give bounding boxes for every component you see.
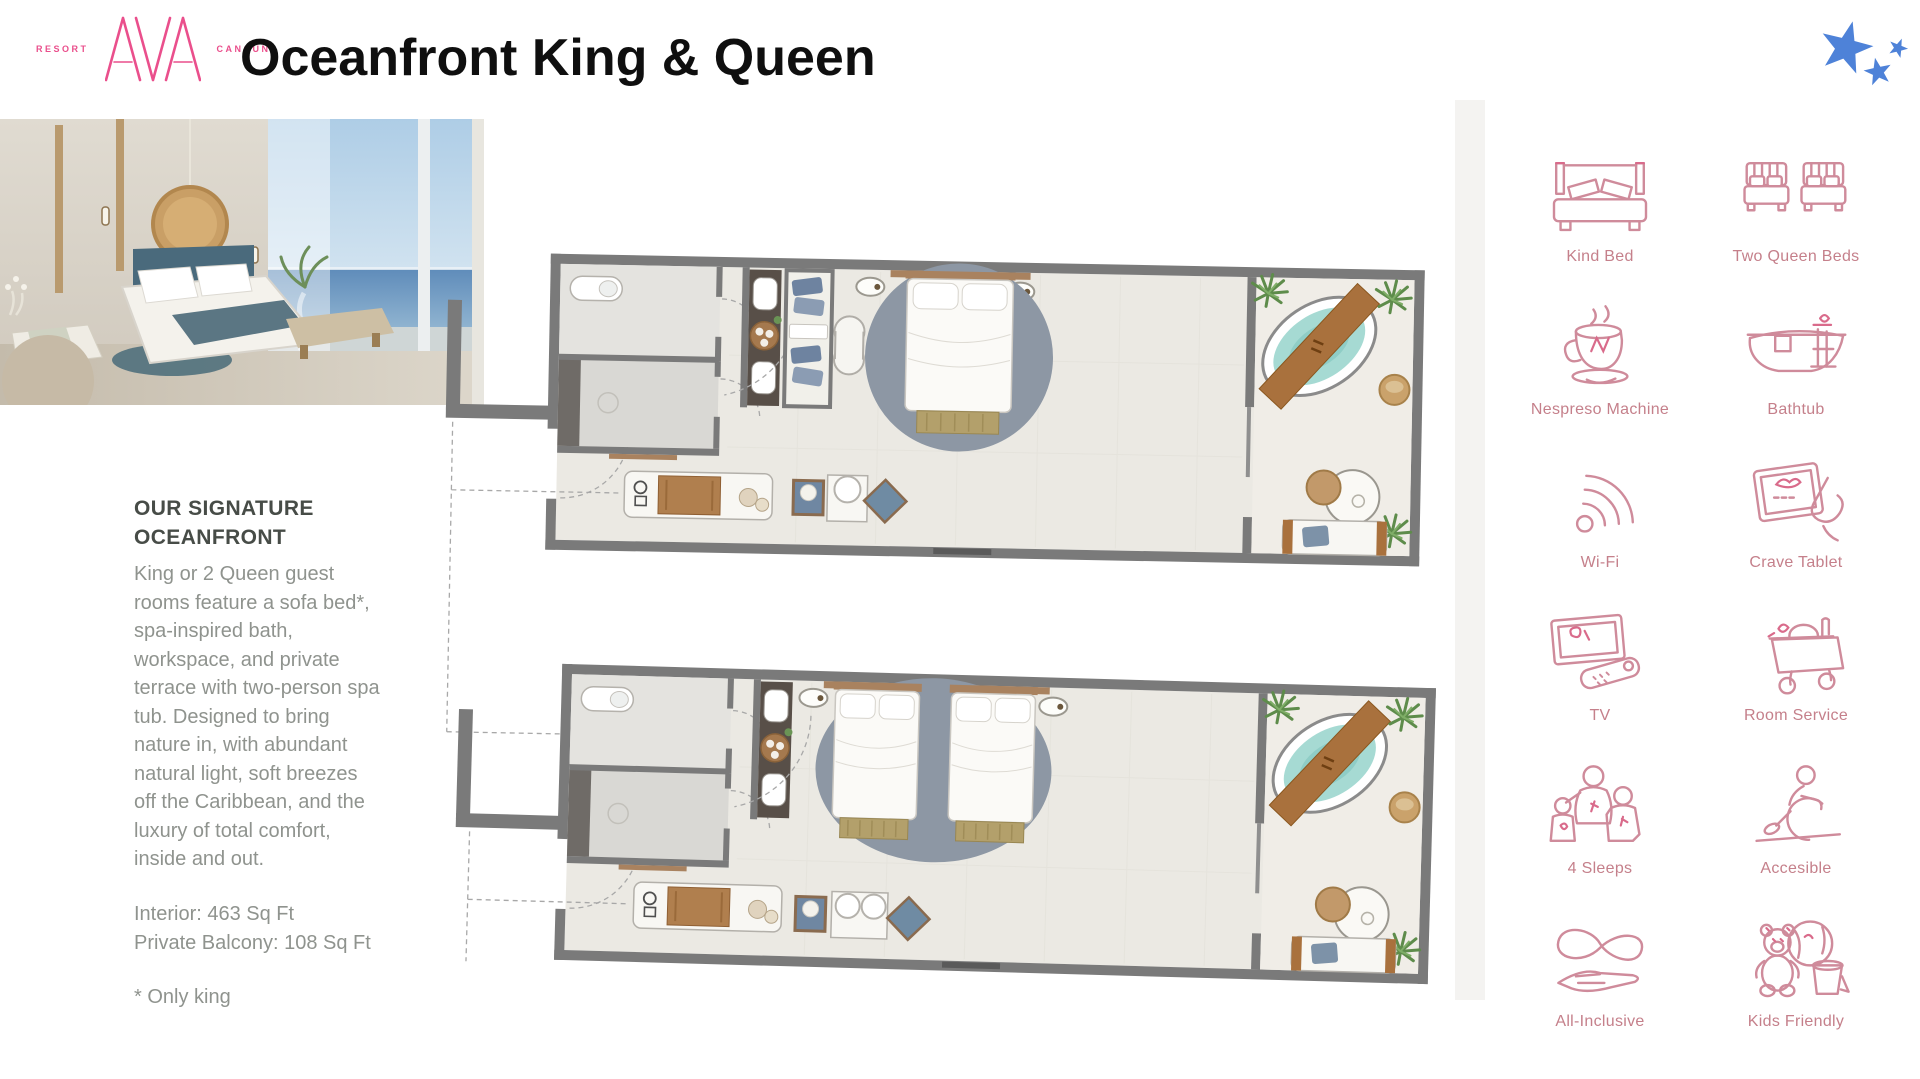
two-queen-room-plan [452, 661, 1436, 988]
room-description-block: OUR SIGNATURE OCEANFRONT King or 2 Queen… [134, 494, 434, 1009]
description-line: natural light, soft breezes [134, 760, 434, 789]
amenity-label: 4 Sleeps [1568, 860, 1633, 878]
amenity-label: Two Queen Beds [1733, 248, 1860, 266]
page-title: Oceanfront King & Queen [240, 28, 876, 88]
peanut-ottoman [834, 316, 865, 375]
amenity-label: All-Inclusive [1555, 1013, 1644, 1031]
amenity-label: Crave Tablet [1749, 554, 1842, 572]
starfish-logo-icon [1806, 6, 1916, 98]
king-bed [903, 270, 1016, 434]
kids-friendly-icon [1741, 915, 1851, 1007]
wifi-icon [1545, 456, 1655, 548]
amenity-item: Accesible [1698, 762, 1894, 915]
room-photo [0, 119, 484, 405]
four-sleeps-icon [1545, 762, 1655, 854]
description-line: off the Caribbean, and the [134, 788, 434, 817]
brand-logo: RESORT CANCUN [36, 16, 271, 82]
two-queen-beds-icon [1741, 150, 1851, 242]
logo-left-text: RESORT [36, 44, 89, 54]
amenity-label: TV [1589, 707, 1610, 725]
amenity-label: Nespreso Machine [1531, 401, 1669, 419]
room-specs: Interior: 463 Sq FtPrivate Balcony: 108 … [134, 900, 434, 958]
king-bed-icon [1545, 150, 1655, 242]
amenity-item: 4 Sleeps [1502, 762, 1698, 915]
bathtub-icon [1741, 303, 1851, 395]
description-line: inside and out. [134, 845, 434, 874]
nespresso-icon [1545, 303, 1655, 395]
amenity-item: Kids Friendly [1698, 915, 1894, 1068]
amenities-grid: Kind BedTwo Queen BedsNespreso MachineBa… [1502, 150, 1906, 1068]
room-service-icon [1741, 609, 1851, 701]
queen-bed-1 [830, 681, 922, 839]
wood-panel [55, 125, 63, 293]
room-fact-sheet: RESORT CANCUN Oceanfront King & Queen [0, 0, 1920, 1079]
amenity-label: Accesible [1760, 860, 1831, 878]
amenity-item: Kind Bed [1502, 150, 1698, 303]
floorplans [440, 228, 1510, 1018]
amenity-item: Nespreso Machine [1502, 303, 1698, 456]
amenity-item: Wi-Fi [1502, 456, 1698, 609]
room-description: King or 2 Queen guestrooms feature a sof… [134, 560, 434, 874]
description-line: rooms feature a sofa bed*, [134, 589, 434, 618]
room-footnote: * Only king [134, 986, 434, 1009]
all-inclusive-icon [1545, 915, 1655, 1007]
amenity-label: Wi-Fi [1581, 554, 1620, 572]
spec-line: Private Balcony: 108 Sq Ft [134, 929, 434, 958]
closet [784, 270, 833, 407]
description-line: King or 2 Queen guest [134, 560, 434, 589]
heading-line-1: OUR SIGNATURE [134, 494, 434, 523]
description-line: tub. Designed to bring [134, 703, 434, 732]
wood-panel [116, 119, 124, 271]
amenity-item: All-Inclusive [1502, 915, 1698, 1068]
amenity-label: Kind Bed [1566, 248, 1633, 266]
crave-tablet-icon [1741, 456, 1851, 548]
amenity-item: Two Queen Beds [1698, 150, 1894, 303]
amenity-label: Bathtub [1767, 401, 1824, 419]
amenity-item: Crave Tablet [1698, 456, 1894, 609]
description-line: terrace with two-person spa [134, 674, 434, 703]
queen-bed-2 [946, 685, 1038, 843]
amenity-label: Room Service [1744, 707, 1848, 725]
heading-line-2: OCEANFRONT [134, 523, 434, 552]
amenity-item: Room Service [1698, 609, 1894, 762]
ava-logo-icon [105, 16, 201, 82]
accessible-icon [1741, 762, 1851, 854]
description-line: spa-inspired bath, [134, 617, 434, 646]
amenity-label: Kids Friendly [1748, 1013, 1844, 1031]
description-heading: OUR SIGNATURE OCEANFRONT [134, 494, 434, 552]
amenity-item: TV [1502, 609, 1698, 762]
description-line: workspace, and private [134, 646, 434, 675]
amenity-item: Bathtub [1698, 303, 1894, 456]
spec-line: Interior: 463 Sq Ft [134, 900, 434, 929]
tv-icon [1545, 609, 1655, 701]
description-line: luxury of total comfort, [134, 817, 434, 846]
description-line: nature in, with abundant [134, 731, 434, 760]
